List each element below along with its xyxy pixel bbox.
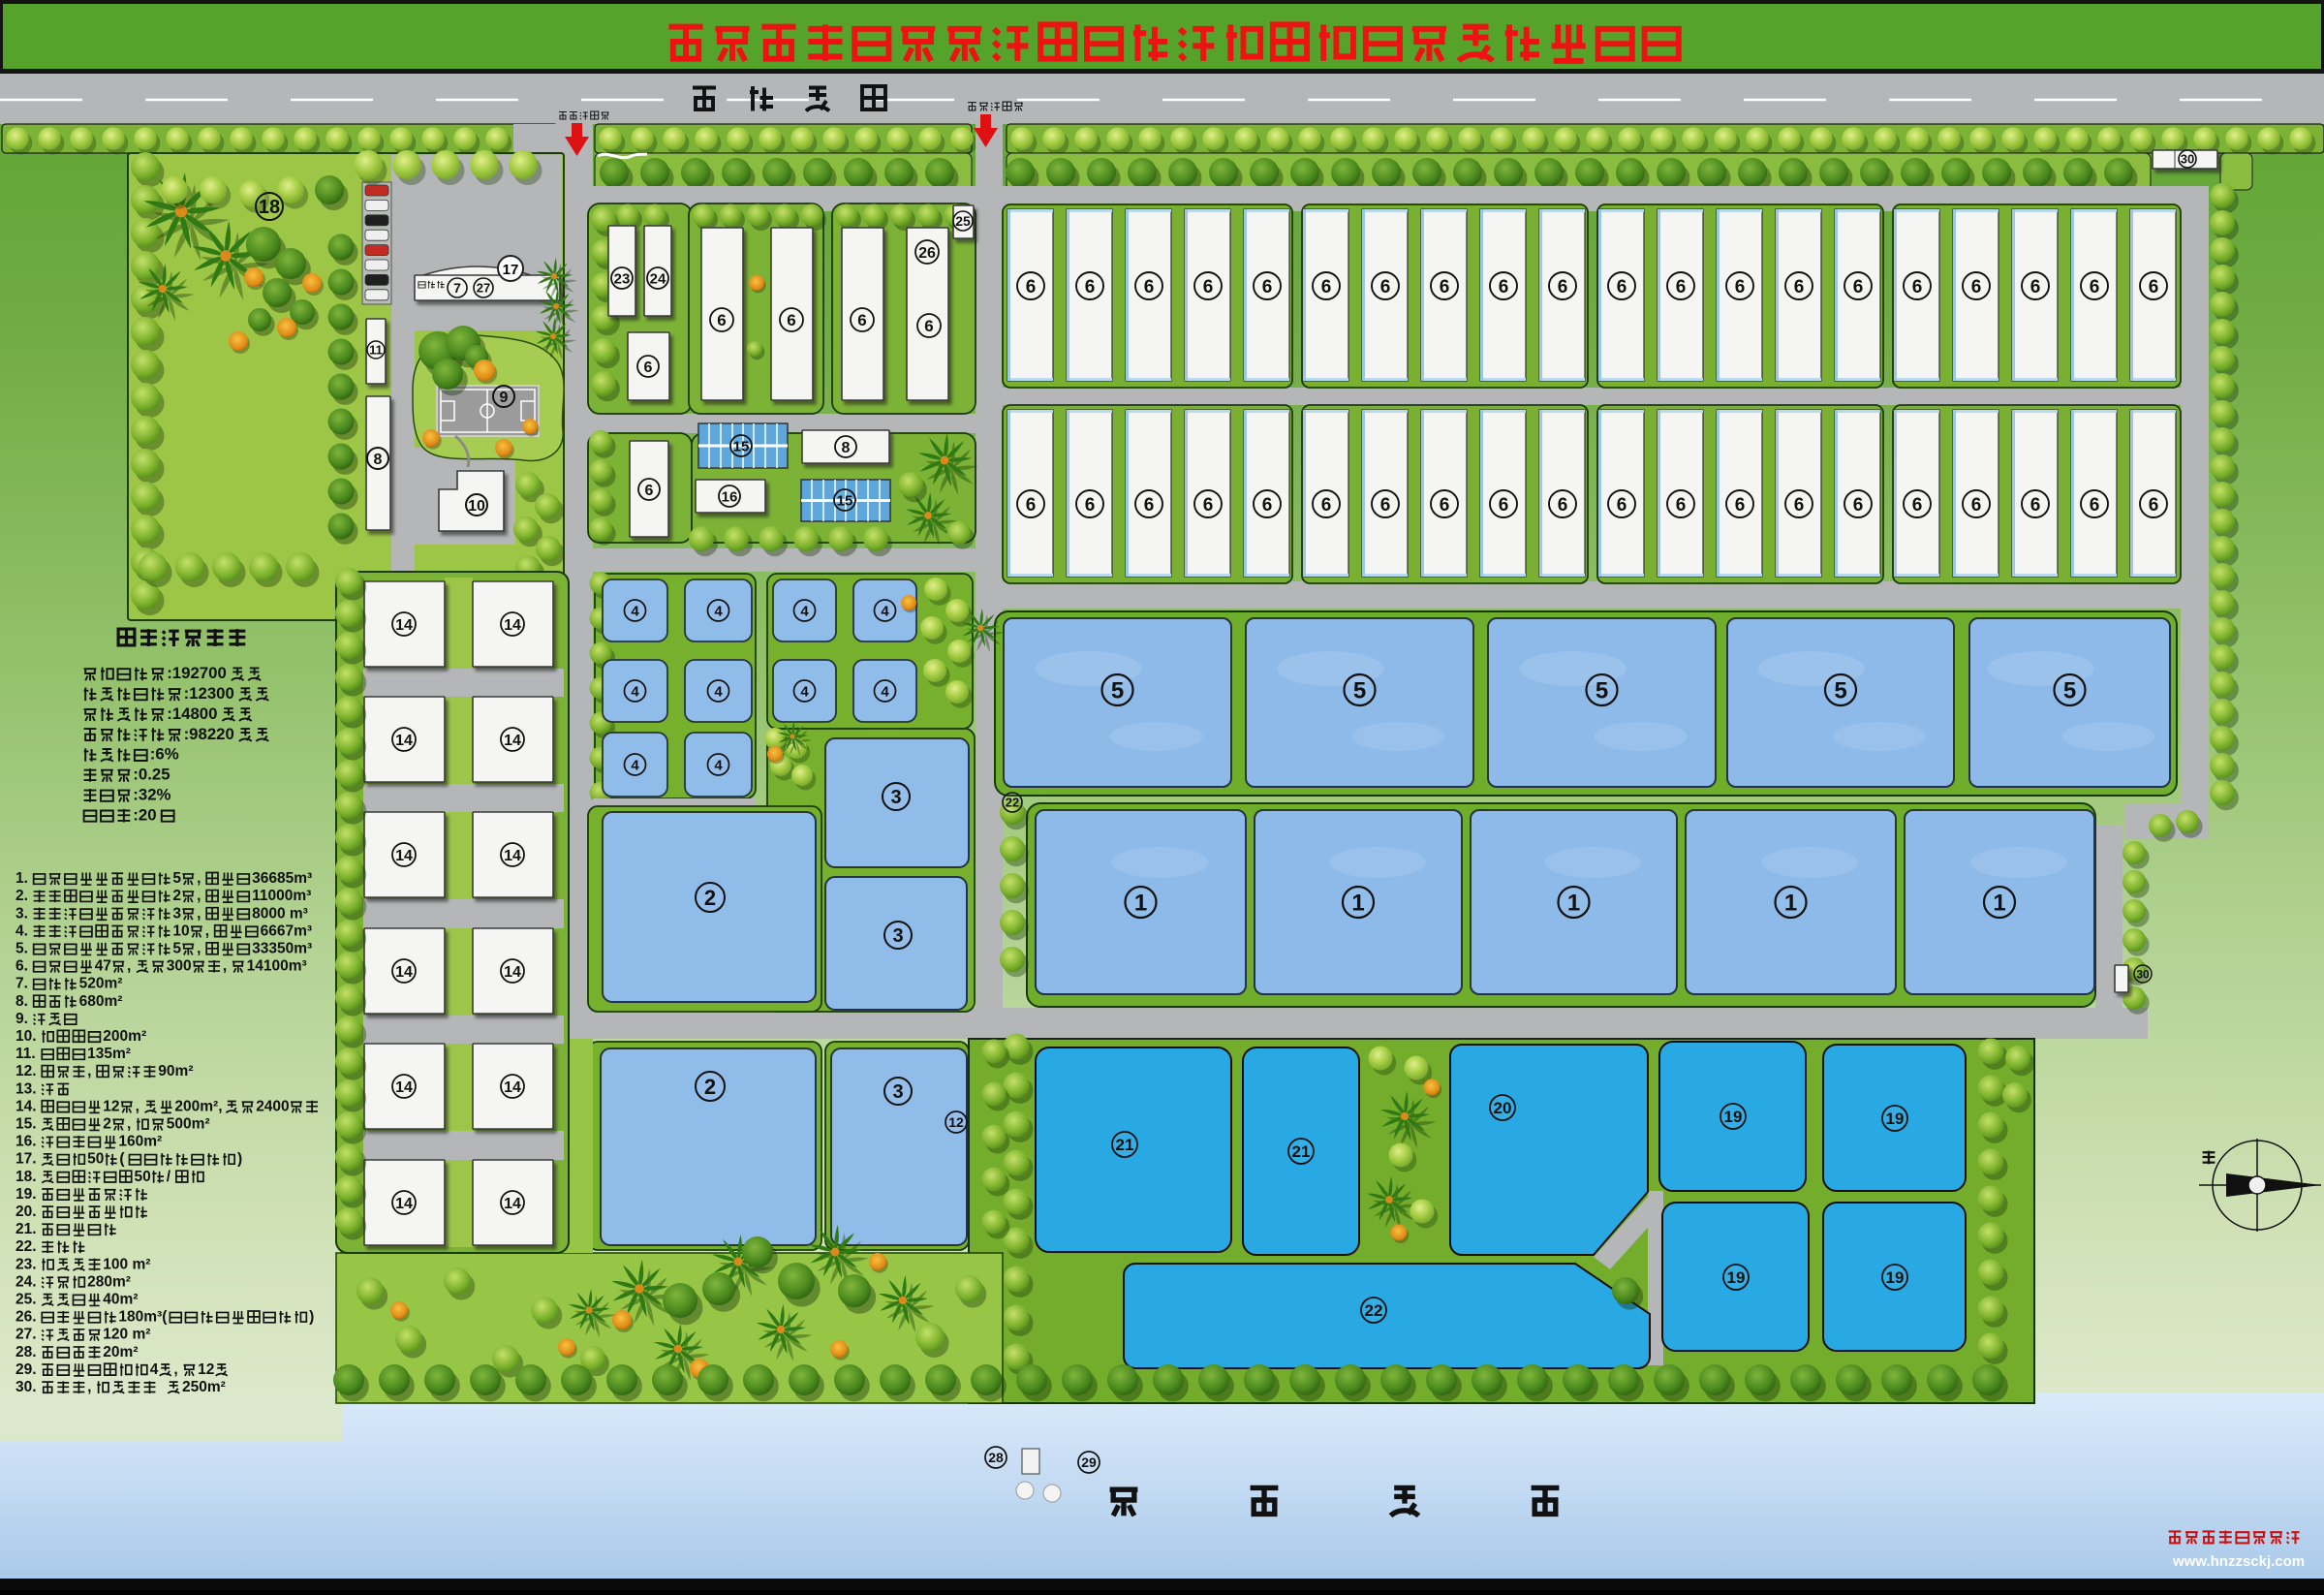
svg-text:(: ( [119, 1151, 125, 1168]
svg-text:6: 6 [1262, 277, 1273, 297]
svg-text:6: 6 [1735, 495, 1746, 516]
svg-text:6: 6 [1735, 277, 1746, 297]
svg-text:6: 6 [1971, 495, 1982, 516]
svg-text:135m²: 135m² [87, 1046, 131, 1062]
svg-text:3: 3 [890, 787, 901, 808]
svg-text:4: 4 [714, 683, 723, 700]
svg-text:6: 6 [2030, 495, 2041, 516]
svg-text:200m²,: 200m², [174, 1098, 222, 1114]
svg-text:14: 14 [395, 1196, 413, 1212]
svg-text:13.: 13. [15, 1080, 37, 1097]
svg-text:50: 50 [135, 1169, 151, 1185]
svg-text:30: 30 [2136, 967, 2150, 981]
svg-text:33350m³: 33350m³ [252, 941, 312, 957]
svg-text:19: 19 [1886, 1268, 1905, 1287]
svg-text:27.: 27. [15, 1327, 37, 1343]
svg-text:14: 14 [504, 617, 521, 634]
svg-text:6: 6 [1026, 277, 1037, 297]
svg-text:6: 6 [1794, 495, 1805, 516]
svg-text:5: 5 [172, 941, 181, 957]
svg-text:6: 6 [1440, 495, 1450, 516]
svg-text:14: 14 [395, 1079, 413, 1096]
svg-text:6: 6 [1321, 277, 1332, 297]
svg-text:4: 4 [714, 603, 723, 619]
svg-text:23: 23 [614, 270, 631, 287]
svg-text:160m²: 160m² [118, 1134, 162, 1150]
svg-text:6: 6 [644, 360, 653, 376]
svg-text:19: 19 [1724, 1108, 1743, 1126]
svg-text:6: 6 [1617, 495, 1627, 516]
svg-text:28.: 28. [15, 1344, 37, 1360]
svg-text:16.: 16. [15, 1134, 37, 1150]
svg-text:14: 14 [504, 964, 521, 981]
svg-text::12300: :12300 [184, 684, 234, 703]
svg-text:29.: 29. [15, 1361, 37, 1378]
svg-text:27: 27 [477, 281, 490, 296]
svg-text:11: 11 [369, 343, 383, 358]
svg-text:26.: 26. [15, 1309, 37, 1326]
svg-text:4: 4 [631, 757, 639, 773]
svg-text:,: , [127, 958, 131, 975]
svg-text:6: 6 [1499, 495, 1509, 516]
svg-text:3: 3 [892, 925, 903, 947]
svg-text:1: 1 [1993, 891, 2005, 917]
svg-text:6: 6 [2090, 277, 2100, 297]
svg-text:200m²: 200m² [103, 1028, 146, 1045]
svg-text::192700: :192700 [167, 664, 227, 682]
svg-text:500m²: 500m² [167, 1116, 210, 1133]
svg-text:4: 4 [800, 683, 809, 700]
svg-text:6: 6 [2149, 277, 2159, 297]
svg-text:4: 4 [631, 603, 639, 619]
svg-text:8000 m³: 8000 m³ [252, 905, 308, 922]
svg-text:22.: 22. [15, 1238, 37, 1255]
svg-text:5: 5 [1596, 678, 1608, 704]
svg-text:6: 6 [1558, 277, 1568, 297]
svg-text:28: 28 [988, 1450, 1004, 1465]
svg-text:8: 8 [374, 452, 383, 468]
svg-text:,: , [136, 1098, 139, 1114]
svg-text:2: 2 [704, 886, 716, 910]
svg-text:14: 14 [395, 848, 413, 864]
svg-text:4: 4 [881, 683, 889, 700]
svg-text:6: 6 [1144, 495, 1155, 516]
svg-text:6: 6 [1676, 495, 1687, 516]
svg-text:5: 5 [1353, 678, 1366, 704]
svg-text:,: , [197, 941, 201, 957]
svg-text::98220: :98220 [184, 725, 234, 743]
svg-text:6: 6 [857, 311, 866, 329]
svg-text:20m²: 20m² [103, 1344, 138, 1360]
svg-text:14100m³: 14100m³ [247, 958, 307, 975]
svg-text:6: 6 [1794, 277, 1805, 297]
svg-text:1: 1 [1567, 891, 1580, 917]
svg-text:4: 4 [631, 683, 639, 700]
svg-text:2: 2 [103, 1116, 111, 1133]
svg-text:www.hnzzsckj.com: www.hnzzsckj.com [2172, 1553, 2305, 1570]
svg-text:4: 4 [714, 757, 723, 773]
svg-text:14: 14 [504, 733, 521, 749]
svg-text:): ) [309, 1309, 314, 1326]
svg-text:19: 19 [1886, 1110, 1905, 1128]
svg-text:3.: 3. [15, 905, 28, 922]
svg-text:6: 6 [1026, 495, 1037, 516]
svg-text:,: , [87, 1063, 91, 1079]
svg-text:11000m³: 11000m³ [252, 888, 311, 904]
svg-text:6: 6 [2149, 495, 2159, 516]
svg-text:12: 12 [948, 1114, 964, 1130]
svg-text:14: 14 [504, 848, 521, 864]
svg-text:6: 6 [787, 311, 795, 329]
svg-text:6: 6 [1085, 495, 1096, 516]
svg-text:6: 6 [1380, 277, 1391, 297]
svg-text:6: 6 [1853, 495, 1864, 516]
svg-text:21: 21 [1292, 1142, 1311, 1161]
svg-text:300: 300 [167, 958, 192, 975]
svg-text:120 m²: 120 m² [103, 1327, 150, 1343]
svg-text:1.: 1. [15, 870, 28, 887]
svg-text:,: , [87, 1379, 91, 1395]
svg-text:520m²: 520m² [79, 976, 123, 992]
svg-text:6: 6 [1203, 495, 1214, 516]
svg-text:6: 6 [1912, 277, 1923, 297]
svg-text:29: 29 [1081, 1454, 1097, 1470]
svg-text:4.: 4. [15, 923, 28, 939]
svg-text:6: 6 [1085, 277, 1096, 297]
svg-text:2: 2 [704, 1075, 716, 1099]
svg-text:19.: 19. [15, 1186, 37, 1203]
svg-text:,: , [197, 870, 201, 887]
svg-text:5.: 5. [15, 941, 28, 957]
svg-text:6: 6 [1558, 495, 1568, 516]
svg-text:6: 6 [717, 311, 726, 329]
svg-text:5: 5 [172, 870, 181, 887]
svg-text:,: , [127, 1116, 131, 1133]
svg-text:6: 6 [2090, 495, 2100, 516]
svg-text:1: 1 [1784, 891, 1797, 917]
svg-text:250m²: 250m² [182, 1379, 226, 1395]
svg-text:6: 6 [1912, 495, 1923, 516]
svg-text:24.: 24. [15, 1273, 37, 1290]
svg-text:280m²: 280m² [87, 1273, 131, 1290]
svg-text:25: 25 [955, 213, 971, 229]
svg-text:17.: 17. [15, 1151, 37, 1168]
svg-text:9.: 9. [15, 1011, 28, 1027]
svg-text:10: 10 [172, 923, 189, 939]
svg-text:14: 14 [395, 733, 413, 749]
svg-text:4: 4 [800, 603, 809, 619]
svg-text:11.: 11. [15, 1046, 36, 1062]
svg-text:6: 6 [1617, 277, 1627, 297]
svg-text:25.: 25. [15, 1292, 37, 1308]
svg-text:5: 5 [1834, 678, 1846, 704]
svg-text:15.: 15. [15, 1116, 37, 1133]
svg-text:/: / [167, 1169, 171, 1185]
svg-text:1: 1 [1134, 891, 1147, 917]
svg-text:6: 6 [1203, 277, 1214, 297]
svg-text:180m³(: 180m³( [118, 1309, 168, 1326]
svg-text:19: 19 [1727, 1268, 1746, 1287]
svg-text:,: , [197, 905, 201, 922]
svg-text::6%: :6% [150, 745, 179, 764]
svg-text:,: , [173, 1361, 177, 1378]
svg-text:6: 6 [1144, 277, 1155, 297]
svg-text:4: 4 [881, 603, 889, 619]
svg-text:6: 6 [924, 317, 933, 335]
svg-text:,: , [205, 923, 209, 939]
svg-text::20: :20 [133, 805, 156, 824]
svg-text:5: 5 [2063, 678, 2076, 704]
svg-text:6.: 6. [15, 958, 28, 975]
svg-text:16: 16 [722, 488, 738, 505]
svg-text:6: 6 [1262, 495, 1273, 516]
svg-text:14: 14 [395, 964, 413, 981]
svg-text:7: 7 [453, 280, 461, 296]
svg-text:,: , [223, 958, 227, 975]
svg-text:10.: 10. [15, 1028, 37, 1045]
svg-text:90m²: 90m² [158, 1063, 193, 1079]
svg-text:6: 6 [1321, 495, 1332, 516]
svg-text:50: 50 [87, 1151, 104, 1168]
svg-text:8.: 8. [15, 993, 28, 1010]
svg-text:100 m²: 100 m² [103, 1256, 150, 1272]
svg-text:20.: 20. [15, 1204, 37, 1220]
svg-text:47: 47 [95, 958, 111, 975]
svg-text:6: 6 [645, 483, 654, 499]
svg-text:14: 14 [504, 1196, 521, 1212]
svg-text:14: 14 [395, 617, 413, 634]
svg-text:30.: 30. [15, 1379, 37, 1395]
svg-text:3: 3 [892, 1081, 903, 1103]
svg-text:18.: 18. [15, 1169, 37, 1185]
svg-text:2: 2 [172, 888, 181, 904]
svg-text:15: 15 [837, 492, 853, 509]
svg-text:24: 24 [650, 270, 666, 287]
svg-text:30: 30 [2181, 152, 2194, 167]
svg-text:6: 6 [1499, 277, 1509, 297]
svg-text:14: 14 [504, 1079, 521, 1096]
svg-text:21: 21 [1116, 1136, 1134, 1154]
svg-text:23.: 23. [15, 1256, 37, 1272]
svg-text:12.: 12. [15, 1063, 37, 1079]
svg-text:22: 22 [1365, 1301, 1383, 1320]
svg-text:15: 15 [733, 438, 750, 454]
svg-text:36685m³: 36685m³ [252, 870, 312, 887]
svg-text::0.25: :0.25 [133, 766, 170, 784]
svg-text:22: 22 [1006, 796, 1019, 810]
svg-text:): ) [237, 1151, 242, 1168]
svg-text:6: 6 [1676, 277, 1687, 297]
svg-text:6: 6 [1971, 277, 1982, 297]
svg-text::14800: :14800 [167, 704, 217, 723]
svg-text:5: 5 [1111, 678, 1124, 704]
svg-text:14.: 14. [15, 1098, 37, 1114]
svg-text:12: 12 [198, 1361, 214, 1378]
svg-text:6: 6 [1440, 277, 1450, 297]
svg-text:12: 12 [103, 1098, 119, 1114]
svg-text:10: 10 [468, 498, 485, 515]
svg-text:4: 4 [150, 1361, 159, 1378]
svg-text:7.: 7. [15, 976, 28, 992]
svg-text:3: 3 [172, 905, 181, 922]
svg-text:9: 9 [500, 390, 509, 406]
svg-text:1: 1 [1351, 891, 1364, 917]
svg-text:6: 6 [1380, 495, 1391, 516]
svg-text:6: 6 [1853, 277, 1864, 297]
svg-text:2400: 2400 [256, 1098, 289, 1114]
svg-text:2.: 2. [15, 888, 28, 904]
svg-text:18: 18 [259, 197, 280, 218]
svg-text::32%: :32% [133, 786, 170, 804]
svg-text:,: , [197, 888, 201, 904]
svg-text:20: 20 [1494, 1099, 1512, 1117]
svg-text:17: 17 [503, 262, 519, 278]
svg-text:26: 26 [918, 245, 936, 262]
svg-text:40m²: 40m² [103, 1292, 138, 1308]
svg-text:6: 6 [2030, 277, 2041, 297]
svg-text:680m²: 680m² [79, 993, 123, 1010]
svg-text:8: 8 [842, 440, 851, 456]
svg-text:21.: 21. [15, 1221, 37, 1237]
svg-text:6667m³: 6667m³ [261, 923, 312, 939]
